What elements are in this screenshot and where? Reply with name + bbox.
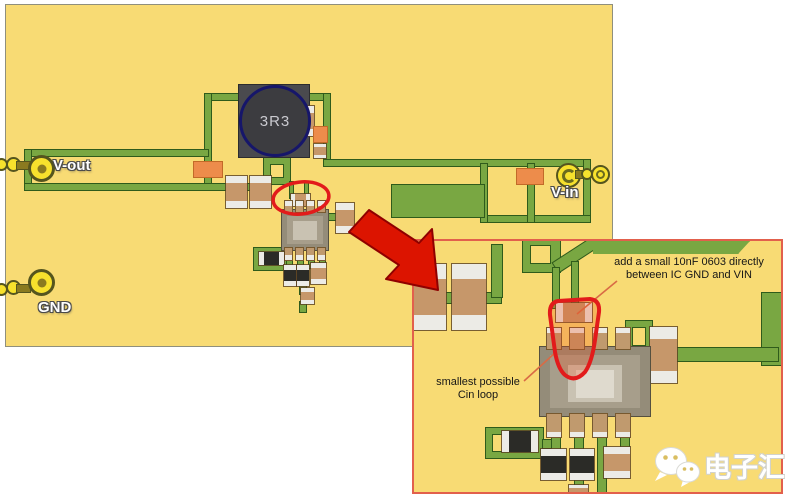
tan-cap-bottom: [301, 288, 314, 304]
tan-cap-row: [311, 263, 326, 284]
ic-pin-top-1: [285, 201, 292, 212]
inset-black-cap-2: [570, 449, 594, 480]
inset-ic-pin-top-4: [616, 328, 630, 349]
resistor-orange-2: [517, 169, 543, 184]
inset-black-cap-1: [541, 449, 566, 480]
inset-right-cap: [650, 327, 677, 383]
inset-input-cap-1: [414, 264, 446, 330]
output-cap-1: [226, 176, 247, 208]
vin-label: V-in: [551, 184, 579, 201]
resistor-orange-3: [314, 127, 327, 142]
inset-input-cap-2: [452, 264, 486, 330]
inset-ic-pin-top-3: [593, 328, 607, 349]
inset-ic-pin-bot-3: [593, 414, 607, 437]
trace-vin-bottom: [481, 216, 590, 222]
buck-ic-pad: [293, 221, 317, 240]
cap-placement-note-line1: add a small 10nF 0603 directly: [596, 256, 782, 269]
inductor-label: 3R3: [260, 113, 291, 130]
inset-ic-pin-bot-2: [570, 414, 584, 437]
black-cap-2: [297, 265, 309, 286]
inset-trace-thin-1: [553, 268, 559, 308]
inset-10nf-cap: [556, 303, 592, 322]
inset-ic-pin-bot-4: [616, 414, 630, 437]
ic-pin-bot-2: [296, 248, 303, 260]
cin-loop-note-line2: Cin loop: [424, 389, 532, 402]
ic-pin-top-2: [296, 201, 303, 212]
ic-pin-top-4: [318, 201, 325, 212]
inset-tan-cap-row: [604, 447, 630, 478]
cin-loop-note: smallest possible Cin loop: [424, 376, 532, 402]
inset-trace-left-v: [492, 245, 502, 297]
resistor-black-main: [259, 252, 284, 265]
ic-pin-bot-1: [285, 248, 292, 260]
vin-pad-3: [591, 165, 610, 184]
gnd-label: GND: [38, 299, 71, 316]
cin-loop-note-line1: smallest possible: [424, 376, 532, 389]
inset-trace-top-band: [593, 241, 750, 254]
trace-vin-top: [324, 160, 590, 166]
black-cap-1: [284, 265, 296, 286]
pcb-layout-screenshot: 3R3 V-out GND V-in: [0, 0, 785, 501]
inset-ic-pin-bot-1: [547, 414, 561, 437]
inset-trace-thin-2: [572, 262, 578, 308]
inductor: 3R3: [239, 85, 311, 157]
ic-pin-bot-3: [307, 248, 314, 260]
inset-ic-pin-top-1: [547, 328, 561, 349]
inset-bottom-cap: [569, 485, 588, 494]
inset-ic-pin-top-2: [570, 328, 584, 349]
vout-label: V-out: [53, 157, 91, 174]
cap-placement-note: add a small 10nF 0603 directly between I…: [596, 256, 782, 282]
inset-trace-window: [531, 246, 550, 263]
cap-placement-note-line2: between IC GND and VIN: [596, 269, 782, 282]
ic-pin-top-3: [307, 201, 314, 212]
watermark-text: 电子汇: [704, 446, 785, 485]
output-cap-2: [250, 176, 271, 208]
inset-black-resistor: [502, 431, 538, 452]
cap-small-right-of-inductor: [314, 144, 326, 158]
copper-plane: [392, 185, 484, 217]
ic-pin-bot-4: [318, 248, 325, 260]
vout-connector: [28, 155, 55, 182]
trace-vout-top: [25, 150, 208, 156]
inset-buck-ic-pad-center: [576, 370, 614, 398]
gnd-connector: [28, 269, 55, 296]
cap-right-of-ic: [336, 203, 354, 233]
resistor-orange-1: [194, 162, 222, 177]
